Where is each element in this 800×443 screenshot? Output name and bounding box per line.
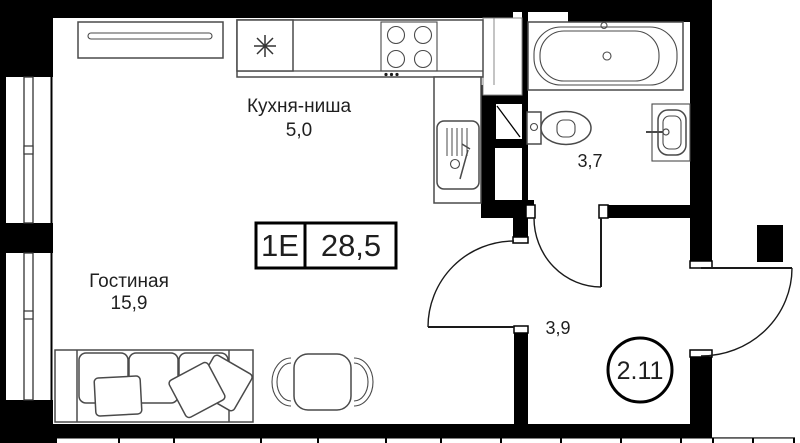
unit-type-label: 1Е bbox=[261, 228, 299, 263]
sofa-icon bbox=[55, 350, 254, 422]
area-label-hallway: 3,9 bbox=[545, 318, 570, 338]
wall-hall-partition bbox=[514, 333, 528, 424]
wall-bathroom-bottom bbox=[607, 205, 690, 218]
bathtub-deck bbox=[528, 22, 683, 90]
bathroom-door-arc bbox=[534, 218, 601, 287]
hall-door-jamb-top bbox=[513, 237, 528, 243]
unit-number-text: 2.11 bbox=[617, 357, 664, 385]
basin-faucet-dot bbox=[663, 129, 669, 135]
toilet-icon bbox=[527, 112, 591, 145]
bathtub-icon bbox=[528, 22, 683, 90]
wardrobe-body bbox=[78, 22, 223, 58]
bathroom-door bbox=[534, 218, 601, 287]
floor-plan: 1Е 28,5 Кухня-ниша 5,0 Гостиная 15,9 3,7… bbox=[0, 0, 800, 443]
window1-mullion bbox=[24, 146, 33, 154]
toilet-tank bbox=[527, 112, 541, 144]
wall-top-right bbox=[568, 0, 712, 22]
wardrobe-icon bbox=[78, 22, 223, 58]
total-area-label: 28,5 bbox=[321, 228, 381, 263]
window2-mullion bbox=[24, 311, 33, 319]
kitchen-sink-icon bbox=[437, 121, 479, 189]
area-label-kitchen: 5,0 bbox=[286, 120, 312, 141]
bottom-dimension-strip bbox=[55, 438, 795, 443]
wall-top-main bbox=[53, 0, 513, 18]
stove-knob bbox=[390, 73, 393, 76]
hall-door bbox=[428, 241, 514, 327]
area-label-bathroom: 3,7 bbox=[577, 151, 602, 171]
unit-number-badge: 2.11 bbox=[608, 338, 672, 402]
window1-outer-edge bbox=[0, 77, 6, 223]
table-with-chairs-icon bbox=[272, 354, 373, 410]
wall-top-step bbox=[513, 0, 568, 12]
fridge-snowflake bbox=[254, 35, 276, 57]
sink-bowl bbox=[437, 121, 479, 189]
floor-plan-svg: 1Е 28,5 Кухня-ниша 5,0 Гостиная 15,9 3,7… bbox=[0, 0, 800, 443]
wall-right-lower bbox=[690, 357, 712, 424]
entry-door-jamb-top bbox=[690, 261, 712, 268]
pillow-icon bbox=[94, 376, 142, 416]
window2-outer-edge bbox=[0, 253, 6, 400]
wash-basin-icon bbox=[646, 104, 690, 161]
chair-icon bbox=[354, 358, 373, 406]
bath-door-jamb-right bbox=[599, 205, 608, 218]
wall-right-upper bbox=[690, 22, 712, 262]
corridor-pillar bbox=[757, 225, 783, 262]
duct-niche-upper bbox=[483, 18, 522, 95]
hall-door-arc bbox=[428, 241, 514, 327]
stove-knob bbox=[395, 73, 398, 76]
wall-kitchen-bath-left bbox=[481, 85, 495, 215]
chair-icon bbox=[272, 358, 291, 406]
room-label-kitchen: Кухня-ниша bbox=[247, 96, 352, 117]
window2-glass bbox=[24, 253, 33, 400]
wall-left-pier bbox=[0, 223, 53, 253]
entrance-door-arc bbox=[701, 268, 792, 356]
room-label-living: Гостиная bbox=[89, 271, 169, 292]
strip-band bbox=[55, 439, 795, 443]
title-box: 1Е 28,5 bbox=[256, 223, 396, 268]
toilet-bowl bbox=[541, 112, 591, 145]
dining-table bbox=[294, 354, 351, 410]
door-jambs bbox=[513, 205, 712, 357]
bath-door-jamb-left bbox=[526, 205, 535, 218]
fridge-icon bbox=[237, 20, 293, 71]
wall-top-left-block bbox=[0, 0, 53, 77]
hall-door-jamb-bottom bbox=[514, 326, 528, 333]
entrance-door bbox=[701, 268, 792, 356]
stove-knob bbox=[384, 73, 387, 76]
area-label-living: 15,9 bbox=[111, 293, 148, 314]
